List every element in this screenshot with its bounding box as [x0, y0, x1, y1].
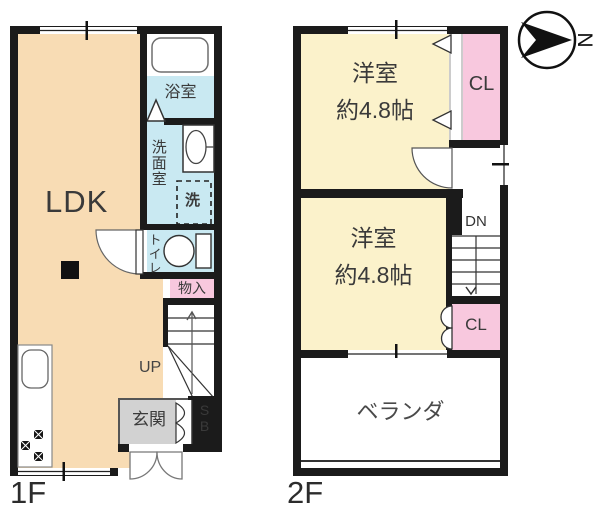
wall-below-storage — [163, 298, 214, 305]
label-washer: 洗 — [185, 193, 200, 209]
stove-burner-icon — [21, 441, 30, 450]
toilet-door-leaf — [136, 230, 143, 274]
label-shoebox-s: S — [196, 403, 213, 418]
label-north: N — [572, 28, 596, 52]
stove-burner-icon — [34, 430, 43, 439]
toilet-bowl-icon — [164, 236, 194, 267]
storage-opening — [163, 279, 170, 298]
label-room1-size: 約4.8帖 — [301, 98, 449, 122]
label-stairs-up: UP — [139, 360, 161, 377]
stove-burner-icon — [34, 452, 43, 461]
kitchen-counter — [18, 345, 52, 467]
sink-icon — [186, 131, 206, 164]
label-room2-name: 洋室 — [301, 226, 446, 250]
label-stairs-down: DN — [452, 214, 500, 230]
label-storage: 物入 — [170, 281, 214, 296]
label-room2-size: 約4.8帖 — [301, 263, 446, 287]
label-ldk: LDK — [45, 186, 108, 219]
entry-step-line-v — [118, 398, 120, 452]
label-shoebox-b: B — [196, 419, 213, 434]
label-closet1: CL — [463, 74, 500, 95]
room-ldk-corridor — [140, 279, 163, 400]
floorplan-canvas: LDK 浴室 洗面室 洗 トイレ 物入 UP 玄関 S B 1F 洋室 約4.8… — [0, 0, 600, 522]
bathtub-icon — [152, 38, 208, 72]
toilet-tank-icon — [196, 234, 211, 268]
label-floor2: 2F — [287, 477, 323, 510]
floorplan-drawing — [0, 0, 600, 522]
label-toilet: トイレ — [147, 233, 161, 275]
label-bath: 浴室 — [147, 85, 214, 102]
compass — [519, 12, 575, 68]
entry-door-opening — [129, 444, 183, 452]
wall-washroom-toilet — [147, 224, 214, 230]
label-room1-name: 洋室 — [301, 61, 449, 85]
label-closet2: CL — [452, 316, 500, 334]
wall-room-divider — [293, 189, 463, 198]
wall-below-closet1 — [449, 140, 500, 148]
pillar — [61, 261, 79, 279]
label-veranda: ベランダ — [301, 400, 500, 423]
wall-ldk-wet — [140, 34, 147, 230]
kitchen-sink-icon — [22, 350, 48, 388]
label-entrance: 玄関 — [122, 411, 176, 429]
label-washroom: 洗面室 — [150, 139, 166, 187]
label-floor1: 1F — [10, 477, 46, 510]
stairs-up-1f — [163, 305, 214, 400]
wall-bath-washroom — [164, 118, 214, 125]
